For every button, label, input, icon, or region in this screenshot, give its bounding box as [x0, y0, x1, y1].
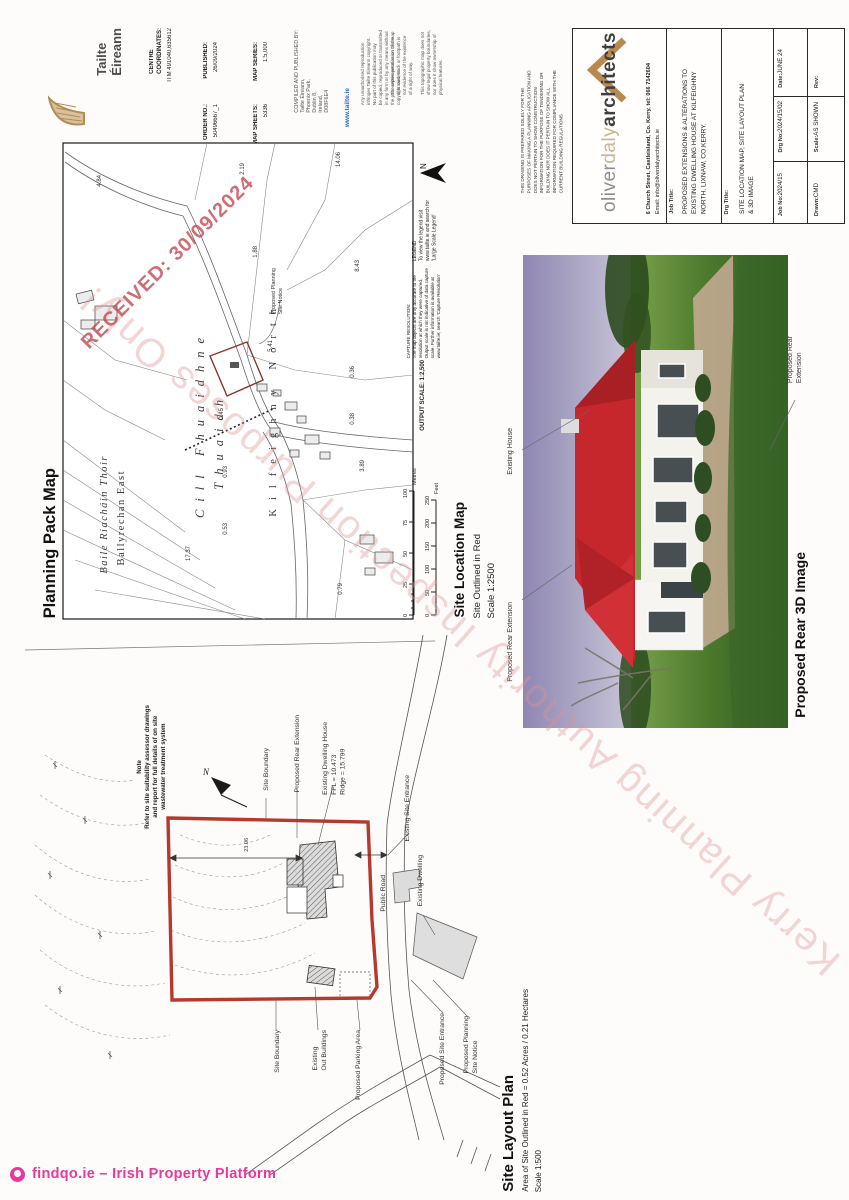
architects-firm-name: oliverdalyarchitects	[600, 32, 620, 212]
published-value: 26/09/2024	[212, 42, 220, 72]
drg-title-text: SITE LOCATION MAP, SITE LAYOUT PLAN & 3D…	[738, 84, 756, 214]
job-no-value: 2024/15	[777, 173, 784, 195]
centre-coordinates-value: ITM 491040,635612	[166, 28, 174, 82]
scanned-planning-document: Tailte Éireann CENTRE COORDINATES: ITM 4…	[0, 0, 849, 1200]
drg-no-value: 2024/15/02	[777, 101, 784, 132]
order-no-label: ORDER NO.:	[202, 104, 210, 140]
scalebar-metres: Metres	[412, 468, 418, 485]
tailte-eireann-harp-icon	[48, 86, 88, 134]
svg-text:200: 200	[425, 519, 431, 528]
parcel-number-13: 0.79	[338, 583, 346, 595]
svg-text:N: N	[419, 163, 428, 169]
label-proposed-rear-extension-right: Proposed Rear Extension	[786, 336, 804, 383]
architects-address: 6 Church Street, Castleisland, Co. Kerry…	[646, 63, 654, 214]
svg-text:100: 100	[403, 489, 409, 498]
footer-brand-bar: findqo.ie – Irish Property Platform	[10, 1166, 276, 1182]
title-block-disclaimer: THIS DRAWING IS PREPARED SOLELY FOR THE …	[520, 70, 565, 193]
map-series-value: 1:5,000	[262, 42, 270, 62]
firm-part-daly: daly	[599, 127, 620, 164]
layout-label-5: Existing Dwelling	[417, 855, 426, 906]
svg-text:75: 75	[403, 520, 409, 526]
architects-email: Email: info@oliverdalyarchitects.ie	[655, 129, 663, 214]
scale-value: AS SHOWN	[813, 102, 820, 136]
map-north-arrow-icon: N	[416, 160, 450, 188]
layout-note: Note Refer to site suitability assessor …	[136, 705, 168, 829]
date-cell: Date:JUNE 24	[776, 49, 786, 88]
drg-title-label: Drg Title:	[724, 190, 731, 214]
publisher-name: Tailte Éireann	[94, 28, 124, 76]
site-layout-plan-title: Site Layout Plan	[500, 1075, 519, 1192]
rev-cell: Rev:	[812, 76, 822, 88]
layout-label-10: Proposed Planning Site Notice	[463, 1016, 481, 1073]
site-boundary-red-outline	[168, 818, 377, 1000]
parcel-number-3: 1.88	[253, 246, 261, 258]
centre-coordinates-label: CENTRE COORDINATES:	[148, 28, 164, 74]
map-sheets-label: MAP SHEETS:	[252, 104, 260, 145]
map-output-scale: OUTPUT SCALE: 1:2,500	[420, 360, 428, 431]
drg-no-cell: Drg No:2024/15/02	[776, 101, 786, 152]
parcel-number-8: 0.38	[350, 413, 358, 425]
site-layout-scale-caption: Scale 1:500	[534, 1150, 544, 1192]
site-area-caption: Area of Site Outlined in Red = 0.52 Acre…	[521, 989, 531, 1192]
date-value: JUNE 24	[777, 49, 784, 74]
layout-label-6: Site Boundary	[274, 1030, 283, 1073]
scalebar-feet: Feet	[434, 483, 440, 494]
parcel-number-12: 17.37	[186, 546, 194, 561]
svg-text:N: N	[202, 767, 210, 777]
townland-irish-east: Baile Riacháin Thoir	[98, 455, 111, 574]
svg-text:250: 250	[425, 496, 431, 505]
map-sheets-value: 5336	[262, 104, 270, 117]
layout-label-2: Existing Dwelling House FFL = 10.473 Rid…	[322, 722, 348, 795]
parcel-number-5: 5.41	[268, 340, 276, 352]
map-site-notice-label: Proposed Planning Site Notice	[271, 268, 285, 314]
order-no-value: 50496667_1	[212, 104, 220, 137]
firm-part-architects: architects	[599, 32, 620, 127]
parcel-number-6: 0.36	[350, 366, 358, 378]
tailte-website-link[interactable]: www.tailte.ie	[344, 88, 352, 127]
job-title-label: Job Title:	[669, 189, 676, 214]
compiled-by-block: COMPILED AND PUBLISHED BY: Tailte Éirean…	[294, 30, 330, 113]
townland-english-east: Ballyrechan East	[115, 470, 128, 565]
scale-cell: Scale:AS SHOWN	[812, 102, 822, 152]
site-outlined-caption: Site Outlined in Red	[472, 534, 484, 619]
layout-label-9: Proposed Site Entrance	[439, 1013, 448, 1085]
map-legend-note: LEGEND To view the legend visit www.tail…	[412, 200, 438, 261]
parcel-number-4: 8.43	[355, 260, 363, 272]
site-location-scale-caption: Scale 1:2500	[486, 563, 498, 618]
footer-brand-text[interactable]: findqo.ie – Irish Property Platform	[32, 1166, 276, 1182]
job-no-cell: Job No:2024/15	[776, 173, 786, 216]
parcel-number-10: 0.53	[223, 523, 231, 535]
firm-part-oliver: oliver	[599, 164, 620, 212]
proposed-rear-3d-caption: Proposed Rear 3D Image	[792, 552, 810, 718]
svg-text:150: 150	[425, 542, 431, 551]
parcel-number-11: 3.89	[360, 460, 368, 472]
layout-north-arrow-icon: N	[202, 767, 247, 807]
layout-label-7: Existing Out Buildings	[312, 1030, 330, 1070]
layout-label-0: Site Boundary	[263, 748, 272, 791]
planning-pack-map-title: Planning Pack Map	[40, 468, 61, 618]
copyright-notice-2: The representation on this map of a road…	[390, 30, 444, 95]
parcel-number-0: 4.84	[97, 175, 105, 187]
drawn-cell: Drawn:CMD	[812, 183, 822, 216]
dimension-value: 23.06	[244, 838, 251, 852]
layout-label-8: Proposed Parking Area	[355, 1030, 364, 1100]
map-series-label: MAP SERIES:	[252, 42, 260, 81]
parcel-number-9: 0.93	[223, 466, 231, 478]
map-capture-resolution-note: CAPTURE RESOLUTION: The map objects are …	[406, 268, 442, 358]
layout-label-1: Proposed Rear Extension	[294, 715, 303, 792]
label-existing-house: Existing House	[506, 428, 515, 475]
job-title-text: PROPOSED EXTENSIONS & ALTERATIONS TO EXI…	[681, 69, 709, 214]
parcel-number-2: 14.06	[336, 152, 344, 167]
site-layout-plan-canvas: N	[15, 635, 510, 1175]
layout-label-4: Public Road	[380, 875, 389, 912]
published-label: PUBLISHED:	[202, 42, 210, 79]
findqo-logo-icon	[10, 1167, 25, 1182]
layout-label-3: Existing Site Entrance	[404, 775, 413, 842]
drawn-value: CMD	[813, 183, 820, 197]
